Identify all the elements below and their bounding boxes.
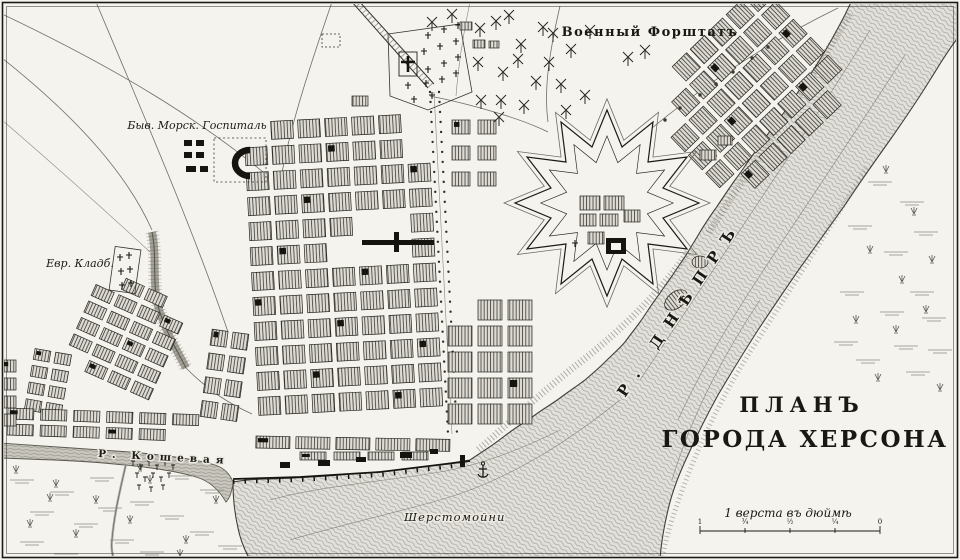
tree-icon (766, 45, 769, 48)
city-block (508, 326, 532, 346)
tree-icon (714, 82, 717, 85)
label-jewish-cemetery: Евр. Кладб. (45, 257, 114, 270)
city-block (303, 219, 326, 238)
city-block (41, 409, 67, 421)
city-block (54, 352, 72, 366)
city-block (308, 319, 331, 338)
city-block (353, 141, 376, 160)
city-block (378, 115, 401, 134)
city-block (478, 404, 502, 424)
city-block (275, 195, 298, 214)
scale-tick-1: 1 (698, 518, 702, 526)
city-block (40, 425, 66, 437)
city-block (478, 326, 502, 346)
city-block (332, 267, 355, 286)
city-block (328, 192, 351, 211)
city-block (281, 320, 304, 339)
city-block (327, 167, 350, 186)
city-block (311, 369, 334, 388)
city-block (210, 329, 228, 347)
city-block (355, 191, 378, 210)
map-title-line1: ПЛАНЪ (739, 392, 864, 417)
city-block (508, 300, 532, 320)
city-block (478, 378, 502, 398)
city-block (257, 371, 280, 390)
scale-tick-14: ¼ (832, 518, 839, 526)
city-block (307, 294, 330, 313)
tree-icon (731, 70, 734, 73)
building (10, 410, 18, 414)
city-block (409, 188, 432, 207)
city-block (376, 438, 410, 451)
city-block (30, 365, 48, 379)
city-block (200, 400, 218, 418)
city-block (33, 349, 51, 363)
city-block (277, 245, 300, 264)
city-block (448, 352, 472, 372)
city-block (420, 388, 443, 407)
city-block (2, 414, 16, 426)
building (328, 145, 335, 152)
city-block (330, 217, 353, 236)
label-wool-washery: Шерстомойни (403, 510, 505, 524)
city-block (381, 165, 404, 184)
city-block (365, 366, 388, 385)
city-block (253, 296, 276, 315)
city-block (51, 369, 69, 383)
city-block (276, 220, 299, 239)
city-block (366, 391, 389, 410)
building (4, 362, 8, 366)
city-block (271, 120, 294, 139)
building (108, 430, 116, 434)
city-block (48, 386, 66, 400)
building (258, 438, 268, 442)
building (302, 454, 310, 457)
tree-icon (698, 93, 701, 96)
city-block (362, 316, 385, 335)
city-block (248, 197, 271, 216)
city-block (255, 346, 278, 365)
city-block (336, 437, 370, 450)
city-block (305, 269, 328, 288)
city-block (2, 396, 16, 408)
city-block (408, 163, 431, 182)
city-block (73, 426, 99, 438)
city-block (334, 292, 357, 311)
city-block (413, 263, 436, 282)
city-block (478, 352, 502, 372)
city-block (354, 166, 377, 185)
tree-icon (750, 56, 753, 59)
scale-tick-34: ¾ (742, 518, 749, 526)
tree-icon (678, 106, 681, 109)
city-block (2, 378, 16, 390)
city-block (448, 404, 472, 424)
city-block (335, 317, 358, 336)
city-block (249, 222, 272, 241)
map-sheet: Военный Форштатъ Быв. Морск. Госпиталь Е… (0, 0, 960, 560)
city-block (359, 266, 382, 285)
city-block (382, 190, 405, 209)
city-block (296, 437, 330, 450)
city-block (300, 169, 323, 188)
building (36, 351, 41, 356)
city-block (203, 377, 221, 395)
city-block (140, 413, 166, 425)
city-block (231, 332, 249, 350)
city-block (336, 342, 359, 361)
city-block (278, 270, 301, 289)
tree-icon (663, 118, 666, 121)
city-block (452, 146, 470, 160)
city-block (508, 404, 532, 424)
building (419, 341, 426, 348)
city-block (299, 144, 322, 163)
city-block (478, 146, 496, 160)
city-block (390, 339, 413, 358)
city-block (207, 353, 225, 371)
building (313, 371, 320, 378)
map-canvas: Военный Форштатъ Быв. Морск. Госпиталь Е… (0, 0, 960, 560)
building (337, 320, 344, 327)
city-block (351, 116, 374, 135)
label-military-suburb: Военный Форштатъ (562, 25, 739, 40)
city-block (448, 326, 472, 346)
building (395, 392, 402, 399)
city-block (107, 411, 133, 423)
city-block (508, 352, 532, 372)
building (510, 380, 517, 387)
building (410, 166, 417, 173)
building (279, 248, 286, 255)
city-block (258, 396, 281, 415)
scale-tick-12: ½ (787, 518, 794, 526)
city-block (411, 213, 434, 232)
city-block (417, 338, 440, 357)
city-block (251, 271, 274, 290)
city-block (250, 247, 273, 266)
city-block (448, 378, 472, 398)
city-block (361, 291, 384, 310)
city-block (389, 314, 412, 333)
city-block (478, 172, 496, 186)
building (255, 299, 262, 306)
city-block (221, 403, 239, 421)
building (304, 196, 311, 203)
scale-tick-0: 0 (878, 518, 882, 526)
city-block (478, 120, 496, 134)
city-block (478, 300, 502, 320)
city-block (284, 370, 307, 389)
map-scene: Военный Форштатъ Быв. Морск. Госпиталь Е… (0, 0, 960, 560)
city-block (74, 410, 100, 422)
city-block (326, 142, 349, 161)
city-block (368, 452, 394, 460)
city-block (256, 436, 290, 449)
pier (460, 455, 465, 467)
city-block (282, 345, 305, 364)
city-block (304, 244, 327, 263)
city-block (309, 344, 332, 363)
map-title-line2: ГОРОДА ХЕРСОНА (662, 426, 949, 453)
city-block (139, 429, 165, 441)
city-block (419, 363, 442, 382)
city-block (392, 364, 415, 383)
building (361, 269, 368, 276)
city-block (338, 367, 361, 386)
city-block (363, 341, 386, 360)
label-naval-hospital: Быв. Морск. Госпиталь (126, 119, 266, 132)
city-block (285, 395, 308, 414)
city-block (301, 194, 324, 213)
city-block (452, 172, 470, 186)
city-block (227, 356, 245, 374)
city-block (254, 321, 277, 340)
building (213, 331, 219, 337)
city-block (224, 380, 242, 398)
city-block (280, 295, 303, 314)
city-block (325, 117, 348, 136)
city-block (27, 382, 45, 396)
city-block (312, 393, 335, 412)
city-block (380, 140, 403, 159)
city-block (386, 264, 409, 283)
city-block (173, 414, 199, 426)
city-block (416, 313, 439, 332)
city-block (272, 145, 295, 164)
building (454, 122, 459, 127)
city-block (273, 170, 296, 189)
city-block (415, 288, 438, 307)
city-block (393, 389, 416, 408)
city-block (339, 392, 362, 411)
city-block (298, 119, 321, 138)
city-block (388, 289, 411, 308)
